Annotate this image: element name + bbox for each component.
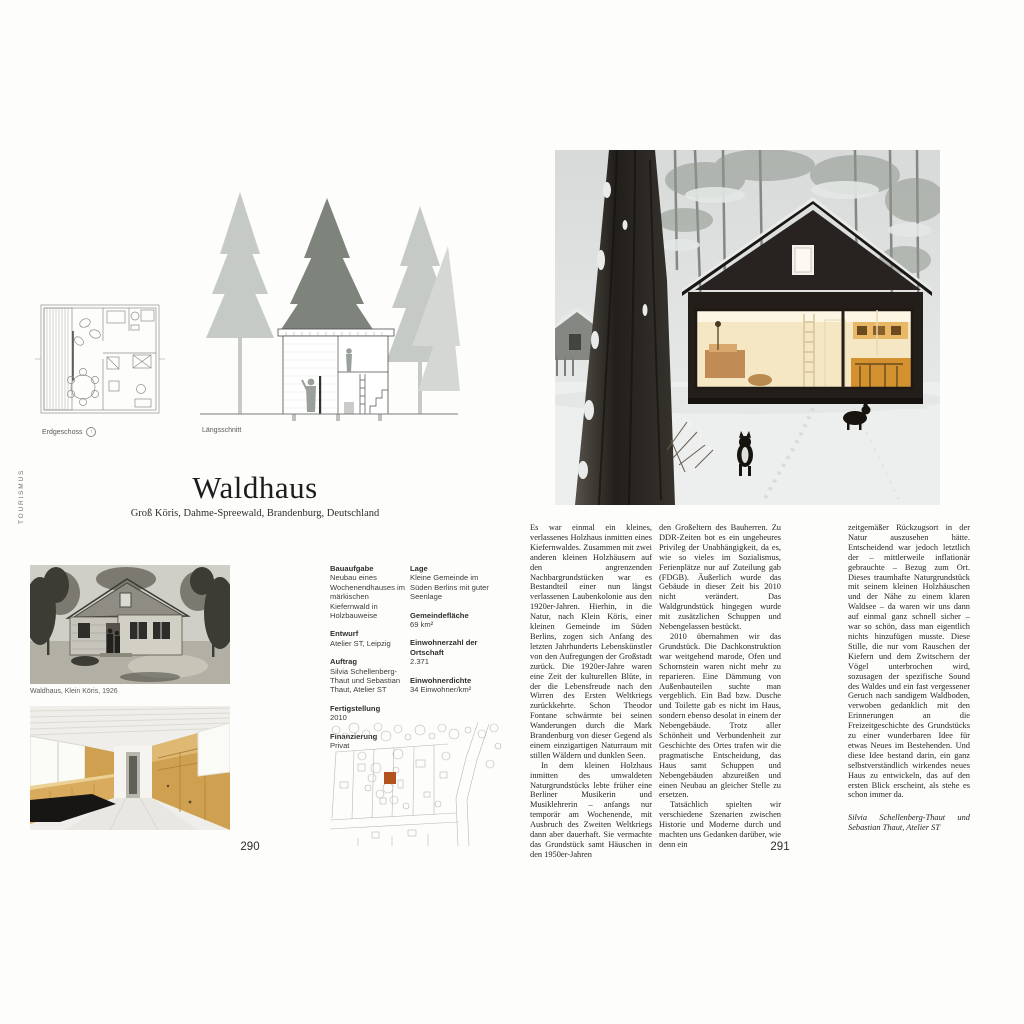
text-column-2: den Großeltern des Bauherren. Zu DDR-Zei…: [659, 523, 781, 850]
fact-entwurf: EntwurfAtelier ST, Leipzig: [330, 629, 406, 648]
plan-caption: Erdgeschoss↑: [42, 427, 96, 437]
paragraph: den Großeltern des Bauherren. Zu DDR-Zei…: [659, 523, 781, 632]
main-photo: [555, 150, 940, 505]
fact-lage: LageKleine Gemeinde im Süden Berlins mit…: [410, 564, 502, 602]
author-credit: Silvia Schellenberg-Thaut und Sebastian …: [848, 813, 970, 833]
section-drawing: [198, 176, 460, 426]
fact-einwohnerdichte: Einwohnerdichte34 Einwohner/km²: [410, 676, 502, 695]
text-column-3: zeitgemäßer Rückzugsort in der Natur aus…: [848, 523, 970, 833]
photo-caption: Waldhaus, Klein Köris, 1926: [30, 688, 118, 695]
fact-gemeindeflaeche: Gemeindefläche69 km²: [410, 611, 502, 630]
fact-auftrag: AuftragSilvia Schellenberg-Thaut und Seb…: [330, 657, 406, 695]
plan-label: Erdgeschoss: [42, 429, 82, 436]
paragraph: In dem kleinen Holzhaus inmitten des umw…: [530, 761, 652, 860]
historic-photo: [30, 565, 230, 684]
facts-column-2: LageKleine Gemeinde im Süden Berlins mit…: [410, 564, 502, 703]
site-plan-house-marker: [384, 772, 396, 784]
site-plan-drawing: [328, 720, 506, 846]
page-number-right: 291: [730, 841, 830, 853]
project-location: Groß Köris, Dahme-Spreewald, Brandenburg…: [55, 508, 455, 519]
north-arrow-icon: ↑: [86, 427, 96, 437]
paragraph: 2010 übernahmen wir das Grundstück. Die …: [659, 632, 781, 800]
kitchen-photo: [30, 706, 230, 830]
fact-einwohnerzahl: Einwohnerzahl der Ortschaft2.371: [410, 638, 502, 666]
floor-plan-drawing: [35, 300, 165, 420]
chapter-label: TOURISMUS: [18, 469, 25, 524]
fact-bauaufgabe: BauaufgabeNeubau eines Wochenendhauses i…: [330, 564, 406, 620]
text-column-1: Es war einmal ein kleines, verlassenes H…: [530, 523, 652, 860]
page-number-left: 290: [200, 841, 300, 853]
book-spread: TOURISMUS: [0, 0, 1024, 1024]
page-title: Waldhaus: [90, 470, 420, 506]
section-label: Längsschnitt: [202, 427, 241, 434]
paragraph: zeitgemäßer Rückzugsort in der Natur aus…: [848, 523, 970, 800]
paragraph: Es war einmal ein kleines, verlassenes H…: [530, 523, 652, 761]
